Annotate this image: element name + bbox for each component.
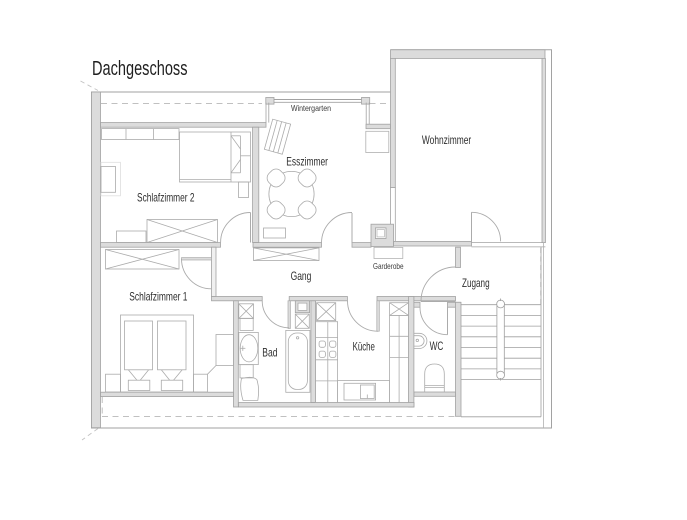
svg-text:Gang: Gang [291,270,312,283]
svg-text:Esszimmer: Esszimmer [286,156,328,169]
svg-text:Wintergarten: Wintergarten [291,103,331,113]
svg-text:Dachgeschoss: Dachgeschoss [92,57,188,80]
svg-text:Schlafzimmer 1: Schlafzimmer 1 [129,290,187,303]
svg-text:Bad: Bad [262,347,277,360]
svg-text:Küche: Küche [353,340,375,353]
svg-text:Garderobe: Garderobe [373,261,404,271]
svg-text:Wohnzimmer: Wohnzimmer [422,134,471,147]
svg-text:WC: WC [430,340,444,353]
svg-text:Schlafzimmer 2: Schlafzimmer 2 [137,192,195,205]
svg-text:Zugang: Zugang [462,277,490,290]
